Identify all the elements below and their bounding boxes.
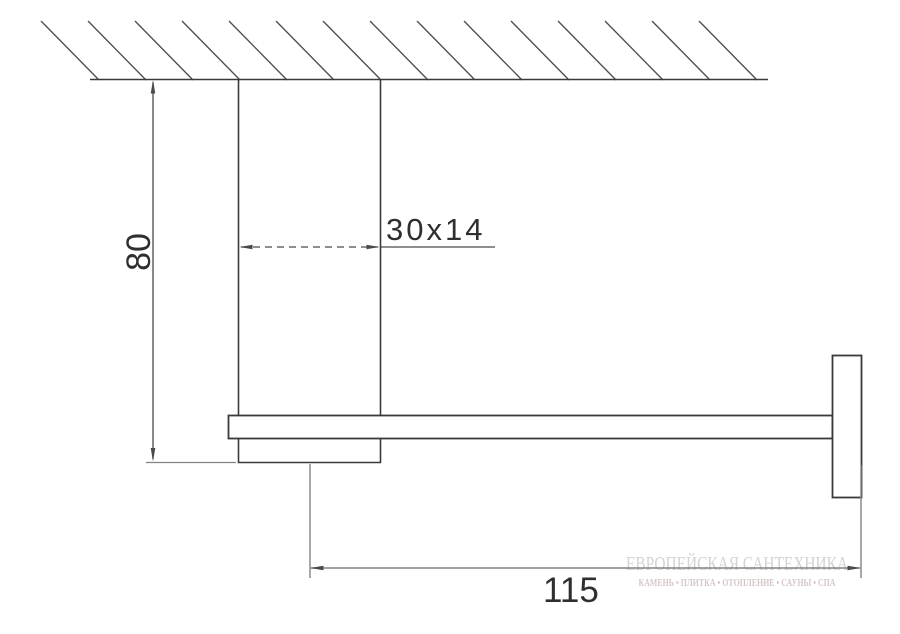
dim-profile-arrow-left [240,245,253,250]
wall-mounting-plate [239,80,381,463]
fixture-body [229,80,862,498]
watermark-subtitle: КАМЕНЬ • ПЛИТКА • ОТОПЛЕНИЕ • САУНЫ • СП… [639,578,836,589]
holder-bar [229,416,833,439]
dim-height-label: 80 [120,233,158,271]
dim-depth-arrow-right [848,566,862,571]
dim-profile-arrow-right [367,245,380,250]
end-plate [833,356,862,498]
watermark: ЕВРОПЕЙСКАЯ САНТЕХНИКА КАМЕНЬ • ПЛИТКА •… [626,552,848,589]
dimension-height-80: 80 [120,80,236,463]
dim-height-arrow-up [151,80,156,94]
drawing-canvas: 80 30x14 ЕВРОПЕЙСКАЯ САНТЕХНИКА КАМЕНЬ •… [0,0,900,634]
wall-section [41,21,768,80]
dim-depth-arrow-left [310,566,324,571]
wall-hatching [41,21,757,80]
watermark-title: ЕВРОПЕЙСКАЯ САНТЕХНИКА [626,552,848,575]
dim-profile-label: 30x14 [386,212,485,247]
dim-height-arrow-down [151,448,156,462]
technical-drawing-page: 80 30x14 ЕВРОПЕЙСКАЯ САНТЕХНИКА КАМЕНЬ •… [0,0,900,634]
dim-depth-label: 115 [543,571,599,610]
dimension-profile-30x14: 30x14 [240,212,496,249]
